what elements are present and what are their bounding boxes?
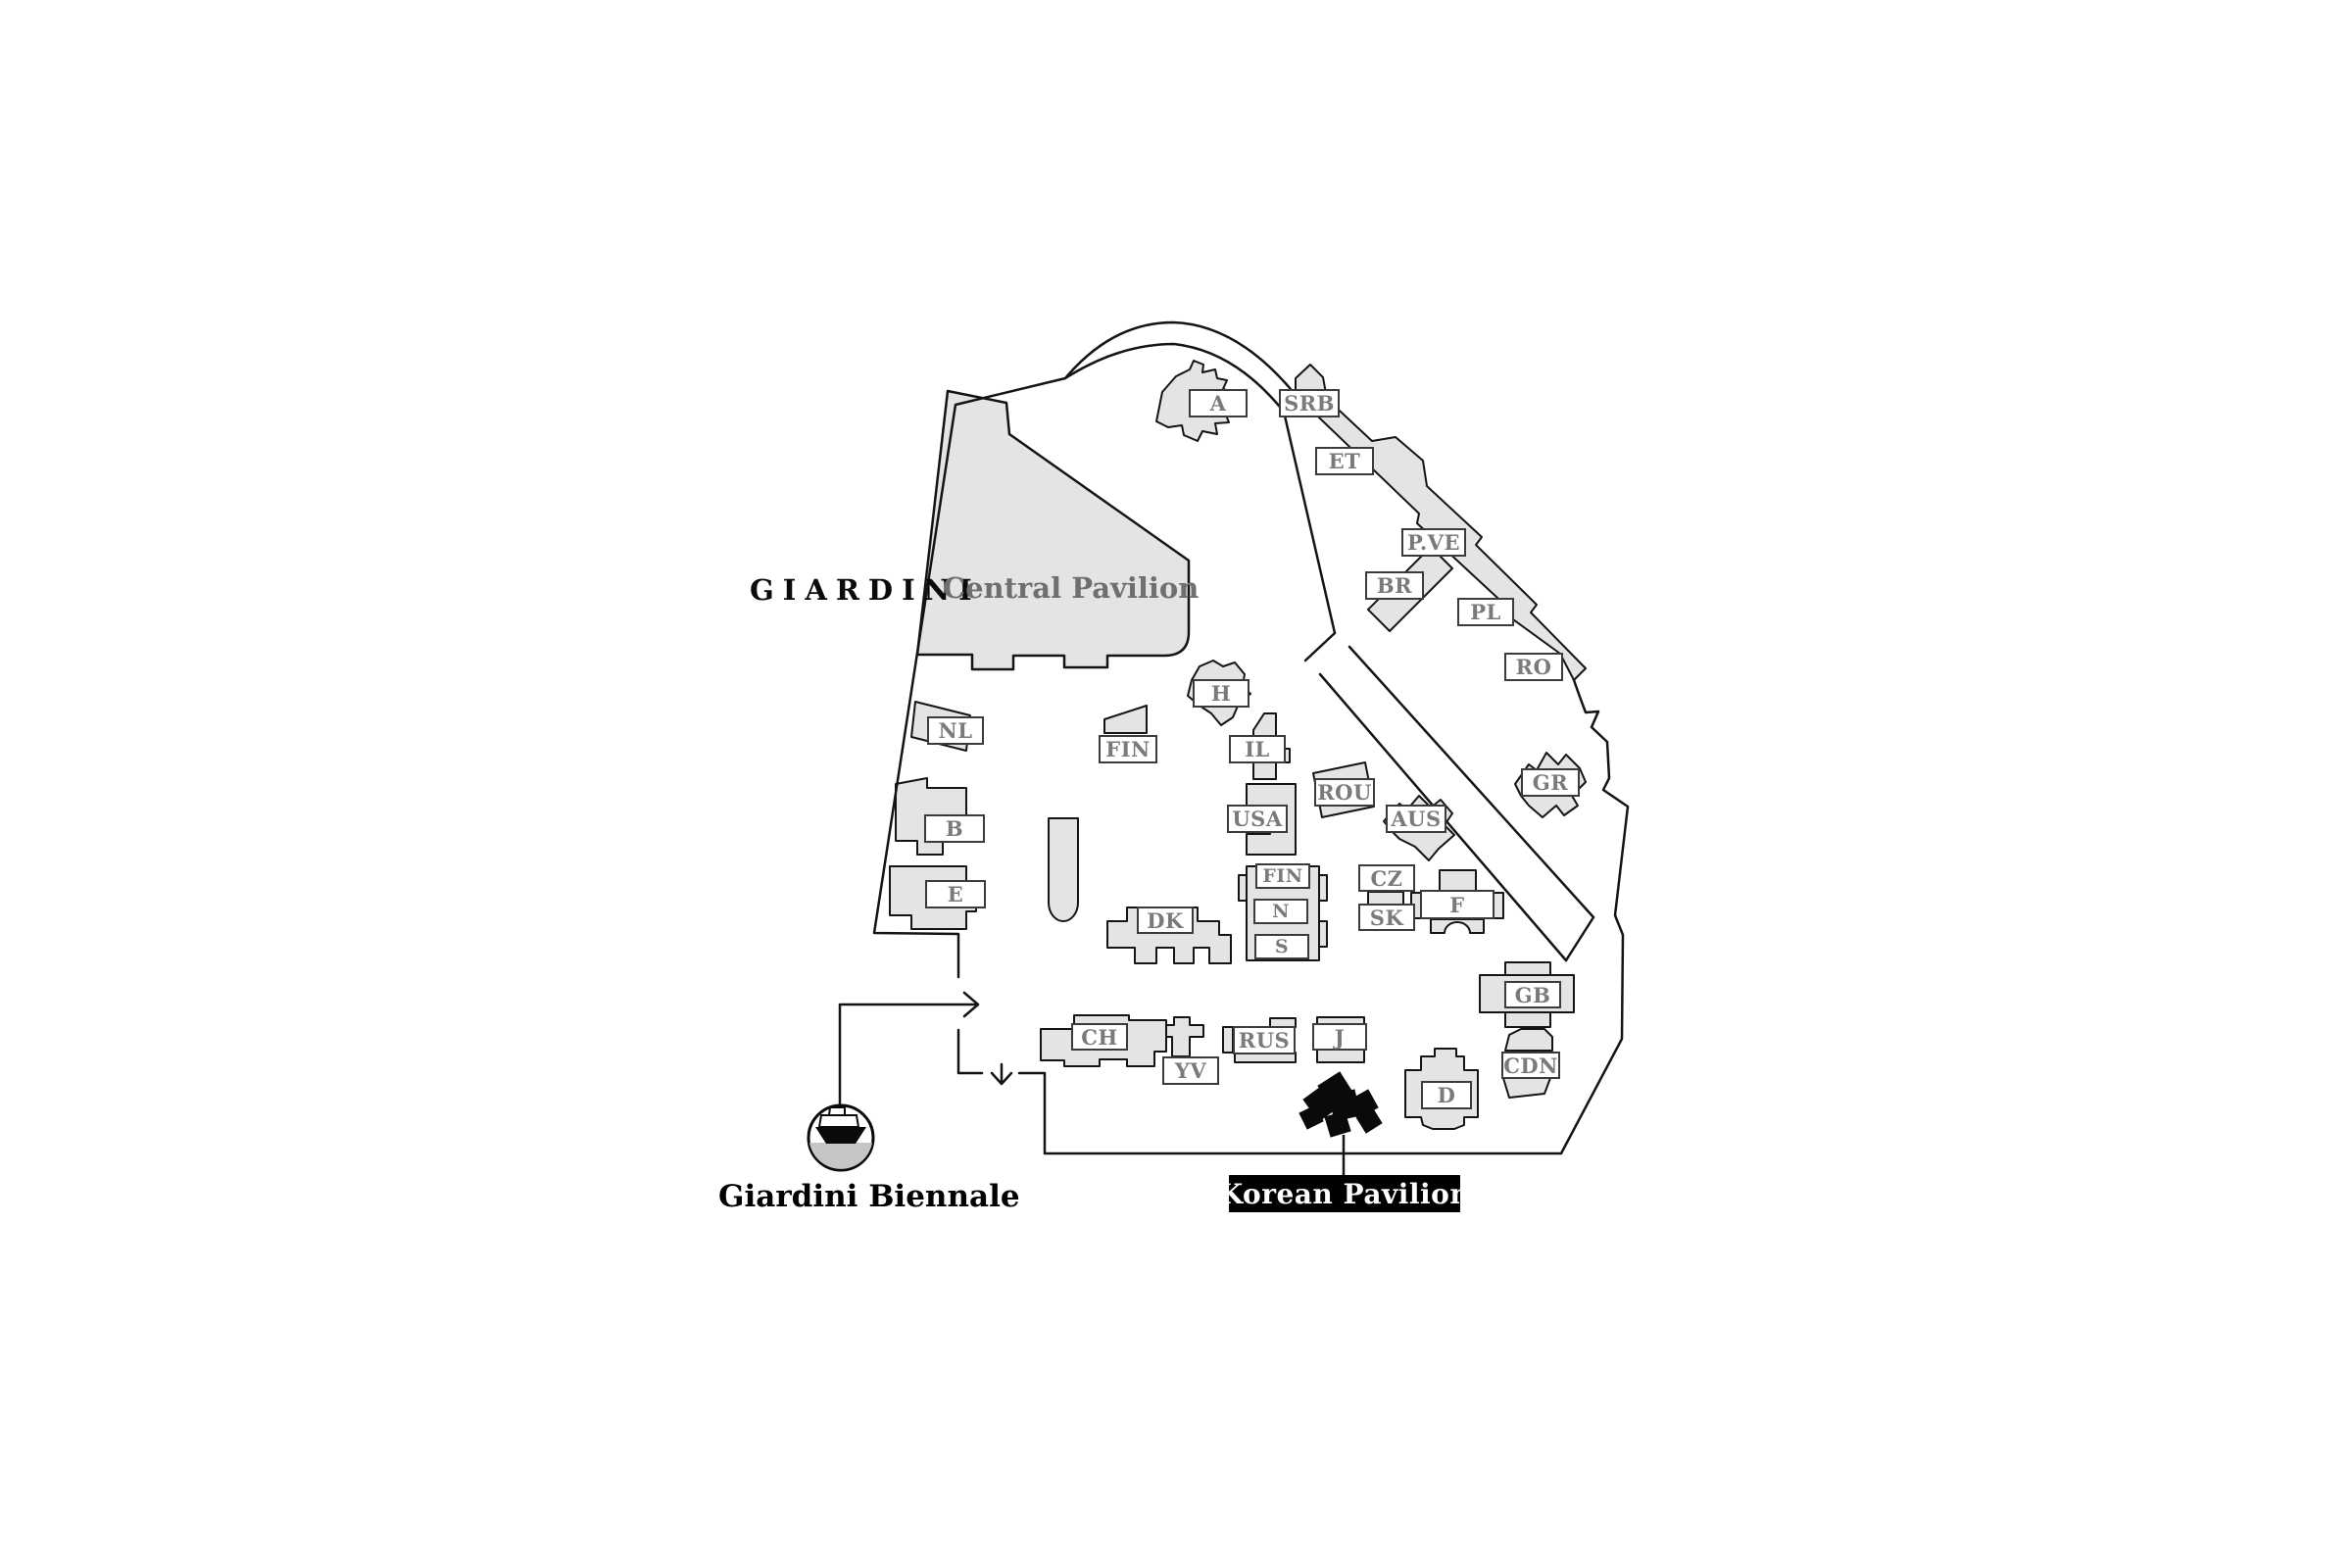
- pavilion-label-pve: P.VE: [1401, 528, 1466, 557]
- arrow-right: [840, 1004, 976, 1105]
- pavilion-label-il: IL: [1229, 735, 1286, 763]
- pavilion-label-srb: SRB: [1279, 389, 1340, 417]
- pavilion-label-usa: USA: [1227, 805, 1288, 833]
- pavilion-label-br: BR: [1365, 571, 1424, 600]
- pavilion-label-n: N: [1253, 899, 1308, 924]
- pavilion-label-e: E: [925, 880, 986, 908]
- pavilion-label-j: J: [1312, 1023, 1367, 1051]
- central-pavilion-label: Central Pavilion: [943, 571, 1198, 605]
- pavilion-label-s: S: [1254, 934, 1309, 959]
- pavilion-label-aus: AUS: [1386, 805, 1446, 833]
- building-f-bottom: [1431, 919, 1484, 933]
- pavilion-label-f: F: [1420, 890, 1494, 919]
- pavilion-label-yv: YV: [1162, 1056, 1219, 1085]
- pavilion-label-b: B: [924, 814, 985, 843]
- pavilion-label-rus: RUS: [1233, 1026, 1296, 1054]
- pavilion-label-cdn: CDN: [1501, 1052, 1560, 1079]
- pond: [1049, 818, 1078, 921]
- pavilion-label-fin: FIN: [1099, 735, 1157, 763]
- central-pavilion-building: [917, 391, 1189, 669]
- vaporetto-stop-label: Giardini Biennale: [718, 1179, 963, 1214]
- pavilion-label-sk: SK: [1358, 904, 1415, 931]
- pavilion-label-gb: GB: [1504, 981, 1561, 1008]
- pavilion-label-ro: RO: [1504, 653, 1563, 681]
- pavilion-label-ch: CH: [1071, 1023, 1128, 1051]
- pavilion-label-a: A: [1189, 389, 1248, 417]
- pavilion-label-pl: PL: [1457, 598, 1514, 626]
- pavilion-label-rou: ROU: [1314, 778, 1375, 807]
- building-f-top: [1440, 870, 1476, 892]
- pavilion-label-nl: NL: [927, 716, 984, 745]
- building-rus: [1223, 1027, 1233, 1053]
- pavilion-label-cz: CZ: [1358, 864, 1415, 892]
- pavilion-label-et: ET: [1315, 447, 1374, 475]
- pavilion-label-h: H: [1193, 679, 1249, 708]
- pavilion-label-fin: FIN: [1255, 863, 1310, 889]
- pavilion-label-dk: DK: [1137, 906, 1194, 934]
- entrance-arrows: [840, 993, 1011, 1105]
- korean-pavilion-building: [1299, 1072, 1382, 1137]
- ferry-icon: [808, 1105, 873, 1170]
- pavilion-label-gr: GR: [1521, 768, 1580, 797]
- building-cdn: [1505, 1029, 1552, 1051]
- korean-pavilion-label: Korean Pavilion: [1229, 1175, 1460, 1212]
- building-yv: [1166, 1017, 1203, 1056]
- building-fin: [1104, 706, 1147, 733]
- giardini-map: GIARDINI Central Pavilion Giardini Bienn…: [0, 0, 2352, 1568]
- pavilion-label-d: D: [1421, 1081, 1472, 1109]
- map-graphics: [0, 0, 2352, 1568]
